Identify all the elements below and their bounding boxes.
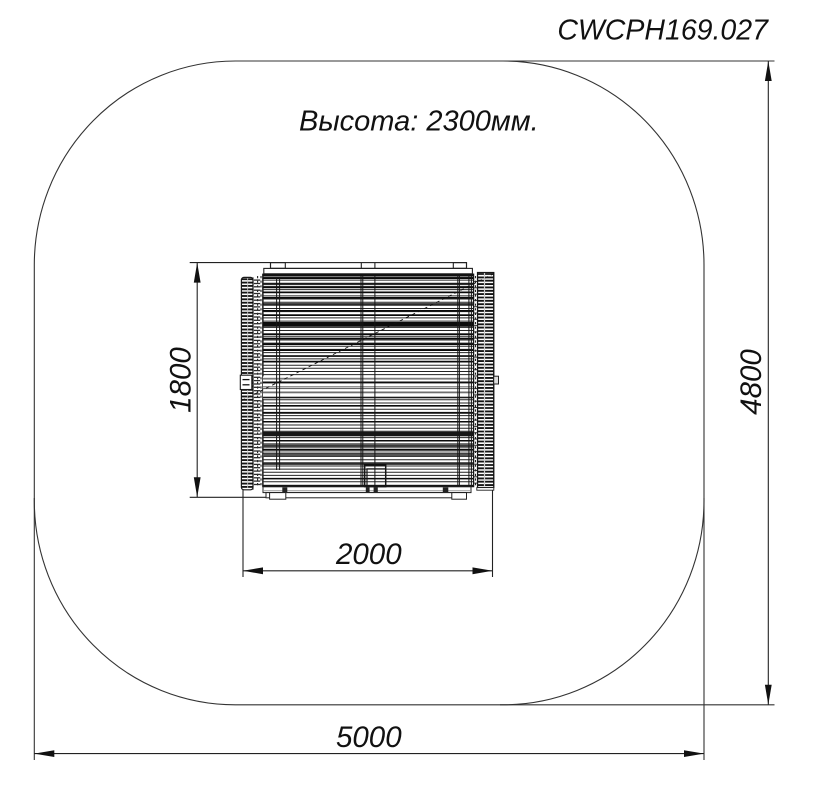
svg-text:Высота: 2300мм.: Высота: 2300мм. bbox=[299, 106, 539, 138]
svg-text:2000: 2000 bbox=[335, 538, 402, 571]
svg-text:4800: 4800 bbox=[735, 349, 768, 415]
svg-text:5000: 5000 bbox=[336, 721, 402, 754]
svg-text:1800: 1800 bbox=[165, 347, 198, 413]
svg-text:CWCPH169.027: CWCPH169.027 bbox=[557, 15, 769, 47]
